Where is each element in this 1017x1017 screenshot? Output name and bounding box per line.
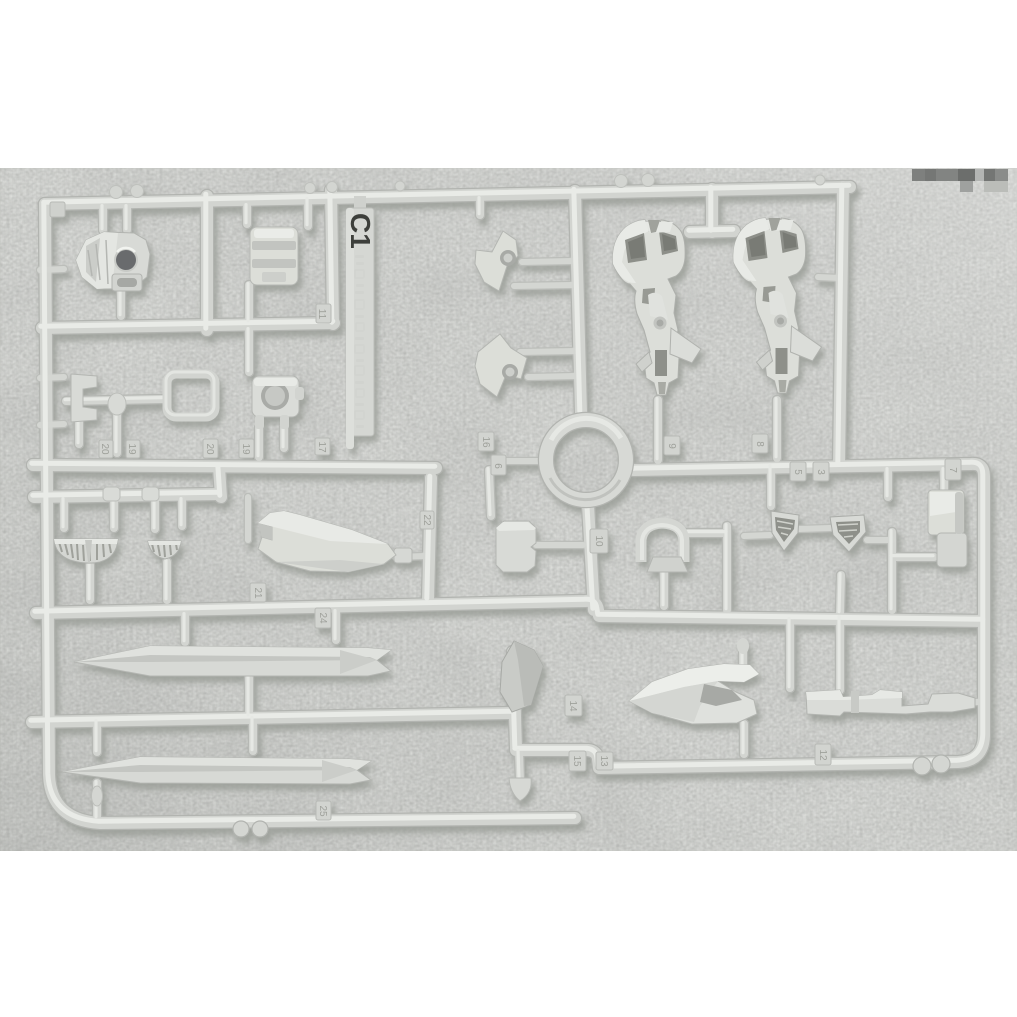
svg-text:17: 17 xyxy=(316,441,327,453)
svg-text:11: 11 xyxy=(316,309,327,320)
svg-text:6: 6 xyxy=(492,463,503,469)
svg-text:C1: C1 xyxy=(345,213,376,249)
svg-text:13: 13 xyxy=(598,755,609,767)
svg-text:19: 19 xyxy=(240,443,251,455)
svg-text:12: 12 xyxy=(817,749,828,761)
svg-text:9: 9 xyxy=(666,443,677,449)
svg-text:10: 10 xyxy=(593,535,604,547)
svg-text:15: 15 xyxy=(571,755,582,767)
svg-text:5: 5 xyxy=(792,469,803,475)
svg-text:21: 21 xyxy=(252,587,263,599)
svg-text:20: 20 xyxy=(99,443,110,455)
svg-text:14: 14 xyxy=(567,700,578,712)
svg-text:16: 16 xyxy=(480,436,491,448)
svg-text:7: 7 xyxy=(947,467,958,473)
svg-text:20: 20 xyxy=(204,443,215,455)
svg-text:19: 19 xyxy=(126,443,137,455)
svg-text:25: 25 xyxy=(317,805,328,817)
svg-text:8: 8 xyxy=(754,441,765,447)
svg-text:3: 3 xyxy=(815,469,826,475)
svg-text:22: 22 xyxy=(421,514,432,526)
svg-text:24: 24 xyxy=(317,612,328,624)
